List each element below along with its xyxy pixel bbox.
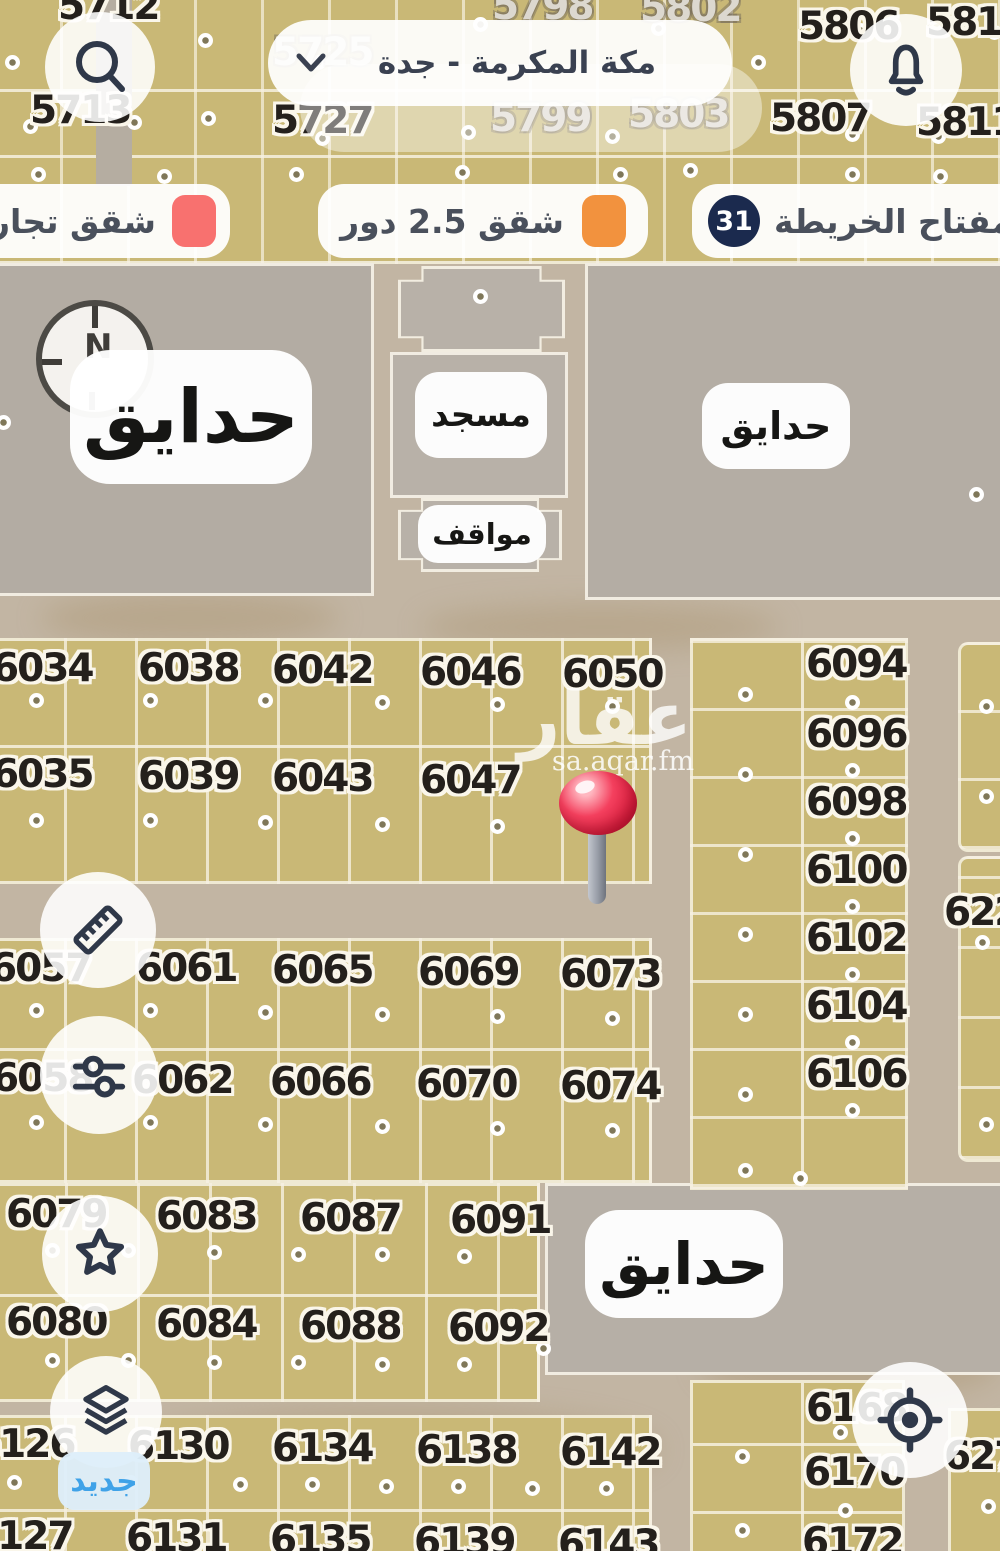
plot-dot [969, 487, 984, 502]
plot-label[interactable]: 6091 [450, 1198, 551, 1243]
plot-dot [845, 695, 860, 710]
search-icon [65, 32, 135, 102]
plot-dot [157, 169, 172, 184]
plot-label[interactable]: 6042 [272, 648, 373, 693]
legend-color-chip-red [172, 195, 216, 247]
plot-label[interactable]: 6070 [416, 1062, 517, 1107]
plot-dot [258, 1005, 273, 1020]
plot-label[interactable]: 6047 [420, 758, 521, 803]
plot-dot [845, 831, 860, 846]
plot-dot [455, 165, 470, 180]
plot-dot [7, 1475, 22, 1490]
watermark-site: sa.aqar.fm [548, 746, 698, 777]
plot-label[interactable]: 6034 [0, 646, 93, 691]
plot-label[interactable]: 6046 [420, 650, 521, 695]
plot-dot [379, 1479, 394, 1494]
plot-dot [490, 697, 505, 712]
plot-label[interactable]: 6135 [270, 1518, 371, 1551]
park-label-west: حدايق [70, 350, 312, 484]
plot-dot [751, 55, 766, 70]
plot-dot [291, 1355, 306, 1370]
plot-dot [613, 167, 628, 182]
plot-dot [735, 1449, 750, 1464]
plot-dot [258, 1117, 273, 1132]
map-pin-stick [588, 828, 606, 904]
measure-button[interactable] [40, 872, 156, 988]
new-feature-badge: جديد [58, 1452, 150, 1510]
plot-dot [143, 1115, 158, 1130]
plot-dot [375, 1247, 390, 1262]
plot-dot [738, 767, 753, 782]
plot-label[interactable]: 6096 [806, 712, 907, 757]
plot-label[interactable]: 6092 [448, 1306, 549, 1351]
plot-dot [738, 1087, 753, 1102]
legend-item-label: شقق تجاري [0, 202, 156, 241]
park-label-east: حدايق [702, 383, 850, 469]
sliders-icon [62, 1038, 136, 1112]
plot-label[interactable]: 6035 [0, 752, 93, 797]
plot-label[interactable]: 6039 [138, 754, 239, 799]
plot-label[interactable]: 6134 [272, 1426, 373, 1471]
region-label: مكة المكرمة - جدة [328, 45, 706, 81]
plot-dot [979, 789, 994, 804]
plot-label[interactable]: 6069 [418, 950, 519, 995]
plot-dot [473, 289, 488, 304]
plot-label[interactable]: 6074 [560, 1064, 661, 1109]
plot-dot [5, 55, 20, 70]
crosshair-icon [872, 1382, 948, 1458]
plot-dot [29, 693, 44, 708]
plot-label[interactable]: 6142 [560, 1430, 661, 1475]
map-app: N حدايق حدايق حدايق مسجد مواقف عقار sa.a… [0, 0, 1000, 1551]
plot-dot [29, 813, 44, 828]
search-button[interactable] [45, 12, 155, 122]
plot-dot [979, 699, 994, 714]
plot-dot [143, 1003, 158, 1018]
locate-button[interactable] [852, 1362, 968, 1478]
legend-item-25-floors: شقق 2.5 دور [318, 184, 648, 258]
plot-dot [605, 1011, 620, 1026]
plot-dot [457, 1249, 472, 1264]
plot-dot [375, 817, 390, 832]
plot-label[interactable]: 6084 [156, 1302, 257, 1347]
plot-dot [29, 1003, 44, 1018]
plot-label[interactable]: 6131 [126, 1516, 227, 1551]
map-pin[interactable] [559, 771, 637, 835]
plot-dot [45, 1353, 60, 1368]
plot-dot [738, 1007, 753, 1022]
plot-dot [793, 1171, 808, 1186]
plot-dot [143, 813, 158, 828]
plot-label[interactable]: 6102 [806, 916, 907, 961]
map-key-label: مفتاح الخريطة [774, 202, 1000, 241]
plot-dot [305, 1477, 320, 1492]
plot-label[interactable]: 6106 [806, 1052, 907, 1097]
chevron-down-icon [294, 51, 328, 75]
plot-label[interactable]: 6083 [156, 1194, 257, 1239]
plot-label[interactable]: 6087 [300, 1196, 401, 1241]
plot-label[interactable]: 6088 [300, 1304, 401, 1349]
plot-dot [207, 1245, 222, 1260]
plot-dot [838, 1503, 853, 1518]
plot-dot [845, 967, 860, 982]
mosque-label: مسجد [415, 372, 547, 458]
map-key-count-badge: 31 [708, 195, 760, 247]
plot-dot [683, 163, 698, 178]
plot-dot [258, 693, 273, 708]
plot-dot [490, 1009, 505, 1024]
plot-dot [143, 693, 158, 708]
plot-dot [979, 1117, 994, 1132]
plot-dot [375, 1119, 390, 1134]
plot-dot [525, 1481, 540, 1496]
plot-dot [375, 1357, 390, 1372]
plot-label[interactable]: 6138 [416, 1428, 517, 1473]
plot-dot [29, 1115, 44, 1130]
plot-dot [845, 763, 860, 778]
plot-label[interactable]: 6104 [806, 984, 907, 1029]
plot-dot [738, 847, 753, 862]
plot-dot [981, 1499, 996, 1514]
plot-label[interactable]: 6038 [138, 646, 239, 691]
mosque-outbuilding [398, 266, 565, 352]
park-label-south: حدايق [585, 1210, 783, 1318]
plot-dot [490, 1121, 505, 1136]
plot-dot [845, 1035, 860, 1050]
region-selector[interactable]: مكة المكرمة - جدة [268, 20, 732, 106]
plot-dot [845, 899, 860, 914]
plot-dot [738, 687, 753, 702]
plot-dot [845, 1103, 860, 1118]
plot-label[interactable]: 6100 [806, 848, 907, 893]
legend-color-chip-orange [582, 195, 626, 247]
plot-dot [291, 1247, 306, 1262]
plot-dot [490, 819, 505, 834]
plot-label[interactable]: 622 [944, 890, 1000, 935]
map-block-far-east-1 [958, 642, 1000, 852]
filters-button[interactable] [40, 1016, 158, 1134]
plot-label[interactable]: 6094 [806, 642, 907, 687]
plot-label[interactable]: 6139 [414, 1520, 515, 1551]
plot-dot [375, 1007, 390, 1022]
plot-dot [198, 33, 213, 48]
plot-dot [738, 927, 753, 942]
plot-label[interactable]: 6172 [802, 1520, 903, 1551]
plot-dot [599, 1481, 614, 1496]
plot-label[interactable]: 6143 [558, 1522, 659, 1551]
plot-dot [605, 1123, 620, 1138]
plot-label[interactable]: 6066 [270, 1060, 371, 1105]
legend-item-label: شقق 2.5 دور [340, 202, 564, 241]
plot-dot [258, 815, 273, 830]
plot-dot [375, 695, 390, 710]
plot-dot [451, 1479, 466, 1494]
plot-dot [457, 1357, 472, 1372]
plot-dot [975, 935, 990, 950]
legend-item-commercial: شقق تجاري [0, 184, 230, 258]
plot-dot [735, 1523, 750, 1538]
favorites-button[interactable] [42, 1196, 158, 1312]
plot-label[interactable]: 6127 [0, 1514, 73, 1551]
ruler-icon [61, 893, 135, 967]
plot-dot [207, 1355, 222, 1370]
terrain-patch [40, 592, 340, 644]
parking-label: مواقف [418, 505, 546, 563]
legend-map-key[interactable]: 31 مفتاح الخريطة [692, 184, 1000, 258]
bell-icon [870, 34, 942, 106]
plot-dot [738, 1163, 753, 1178]
plot-dot [933, 169, 948, 184]
plot-dot [31, 167, 46, 182]
plot-dot [233, 1477, 248, 1492]
plot-label[interactable]: 6043 [272, 756, 373, 801]
plot-label[interactable]: 6098 [806, 780, 907, 825]
notifications-button[interactable] [850, 14, 962, 126]
plot-label[interactable]: 6065 [272, 948, 373, 993]
plot-label[interactable]: 6073 [560, 952, 661, 997]
plot-label[interactable]: 5807 [770, 96, 871, 141]
star-icon [62, 1216, 138, 1292]
layers-icon [69, 1375, 143, 1449]
plot-dot [289, 167, 304, 182]
plot-dot [845, 167, 860, 182]
plot-dot [201, 111, 216, 126]
